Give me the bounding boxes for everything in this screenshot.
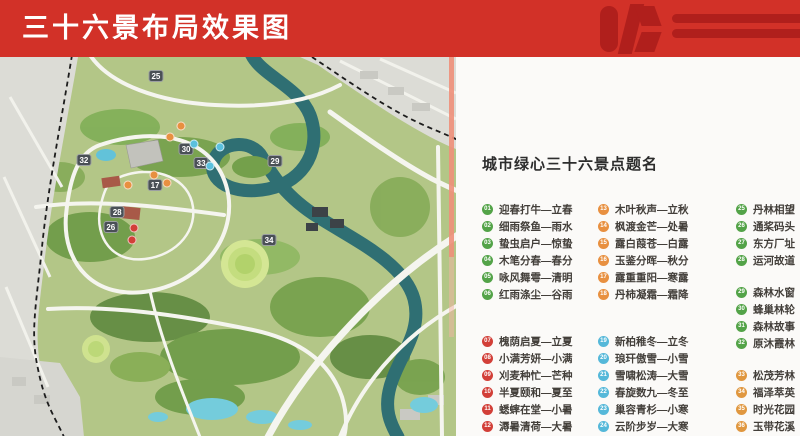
legend-badge: 12	[482, 421, 493, 432]
legend-item: 24云阶步岁—大寒	[598, 418, 736, 435]
legend-group: 25丹林相望26通桨码头27东方厂址28运河故道	[736, 201, 800, 269]
legend-item-label: 春旋数九—冬至	[615, 385, 689, 400]
legend-item: 09刈麦种忙—芒种	[482, 367, 598, 384]
legend-item: 06红雨涤尘—谷雨	[482, 286, 598, 303]
page: 三十六景布局效果图	[0, 0, 800, 436]
legend-item-label: 露白葭苍—白露	[615, 236, 689, 251]
map-marker	[189, 140, 198, 149]
legend-item: 01迎春打牛—立春	[482, 201, 598, 218]
header-ornament-bar	[672, 14, 800, 23]
legend-item-label: 雪啸松涛—大雪	[615, 368, 689, 383]
legend-item: 29森林水窗	[736, 284, 800, 301]
legend-group: 19新柏稚冬—立冬20琅玕傲雪—小雪21雪啸松涛—大雪22春旋数九—冬至23巢容…	[598, 333, 736, 435]
legend-item: 10半夏颐和—夏至	[482, 384, 598, 401]
map-marker	[177, 121, 186, 130]
legend-badge: 05	[482, 272, 493, 283]
legend-badge: 18	[598, 289, 609, 300]
legend-item-label: 丹林相望	[753, 202, 795, 217]
legend-item-label: 蜂巢林轮	[753, 302, 795, 317]
legend-item: 13木叶秋声—立秋	[598, 201, 736, 218]
legend-badge: 01	[482, 204, 493, 215]
legend-item-label: 小满芳妍—小满	[499, 351, 573, 366]
legend-badge: 06	[482, 289, 493, 300]
map-marker-34: 34	[262, 234, 277, 246]
legend-item-label: 东方厂址	[753, 236, 795, 251]
legend-item-label: 红雨涤尘—谷雨	[499, 287, 573, 302]
map-marker-26: 26	[103, 221, 118, 233]
header-ornament	[598, 4, 662, 54]
legend-group: 01迎春打牛—立春02细雨祭鱼—雨水03蛰虫启户—惊蛰04木笔分春—春分05咏风…	[482, 201, 598, 303]
map-marker	[162, 178, 171, 187]
legend-group: 33松茂芳林34福泽萃英35时光花园36玉带花溪	[736, 367, 800, 435]
legend-item: 25丹林相望	[736, 201, 800, 218]
legend-group: 13木叶秋声—立秋14枫渡金芒—处暑15露白葭苍—白露16玉鉴分晖—秋分17露重…	[598, 201, 736, 303]
map-marker	[215, 142, 224, 151]
legend-badge: 04	[482, 255, 493, 266]
legend-item: 28运河故道	[736, 252, 800, 269]
legend-item-label: 露重重阳—寒露	[615, 270, 689, 285]
legend-item: 35时光花园	[736, 401, 800, 418]
legend-item-label: 木叶秋声—立秋	[615, 202, 689, 217]
legend-item-label: 通桨码头	[753, 219, 795, 234]
legend-item-label: 玉鉴分晖—秋分	[615, 253, 689, 268]
legend-item: 16玉鉴分晖—秋分	[598, 252, 736, 269]
legend-badge: 14	[598, 221, 609, 232]
legend-item-label: 新柏稚冬—立冬	[615, 334, 689, 349]
map-marker	[206, 162, 215, 171]
legend-badge: 09	[482, 370, 493, 381]
legend-badge: 11	[482, 404, 493, 415]
legend-badge: 28	[736, 255, 747, 266]
legend-panel: 城市绿心三十六景点题名 01迎春打牛—立春02细雨祭鱼—雨水03蛰虫启户—惊蛰0…	[456, 57, 800, 436]
legend-badge: 24	[598, 421, 609, 432]
header-banner: 三十六景布局效果图	[0, 0, 800, 57]
park-map: 253029323317282634	[0, 57, 456, 436]
legend-item-label: 玉带花溪	[753, 419, 795, 434]
legend-title: 城市绿心三十六景点题名	[482, 153, 658, 174]
legend-badge: 31	[736, 321, 747, 332]
legend-item: 03蛰虫启户—惊蛰	[482, 235, 598, 252]
legend-badge: 16	[598, 255, 609, 266]
legend-badge: 30	[736, 304, 747, 315]
legend-item-label: 半夏颐和—夏至	[499, 385, 573, 400]
legend-item-label: 森林故事	[753, 319, 795, 334]
header-ornament-bar	[672, 29, 800, 38]
legend-item-label: 蛰虫启户—惊蛰	[499, 236, 573, 251]
legend-item: 04木笔分春—春分	[482, 252, 598, 269]
legend-badge: 23	[598, 404, 609, 415]
page-title: 三十六景布局效果图	[22, 0, 292, 57]
legend-badge: 10	[482, 387, 493, 398]
legend-item: 32原沐霞林	[736, 335, 800, 352]
map-markers-layer: 253029323317282634	[0, 57, 456, 436]
legend-badge: 03	[482, 238, 493, 249]
legend-badge: 22	[598, 387, 609, 398]
legend-item-label: 蟋蟀在堂—小暑	[499, 402, 573, 417]
legend-column: 13木叶秋声—立秋14枫渡金芒—处暑15露白葭苍—白露16玉鉴分晖—秋分17露重…	[598, 201, 736, 435]
legend-badge: 07	[482, 336, 493, 347]
map-marker-32: 32	[76, 154, 91, 166]
legend-item-label: 刈麦种忙—芒种	[499, 368, 573, 383]
legend-badge: 34	[736, 387, 747, 398]
legend-group: 29森林水窗30蜂巢林轮31森林故事32原沐霞林	[736, 284, 800, 352]
legend-item-label: 丹柿凝霜—霜降	[615, 287, 689, 302]
legend-group: 07槐荫启夏—立夏08小满芳妍—小满09刈麦种忙—芒种10半夏颐和—夏至11蟋蟀…	[482, 333, 598, 435]
map-marker	[127, 236, 136, 245]
legend-item: 34福泽萃英	[736, 384, 800, 401]
legend-item: 02细雨祭鱼—雨水	[482, 218, 598, 235]
legend-badge: 15	[598, 238, 609, 249]
legend-item-label: 运河故道	[753, 253, 795, 268]
legend-badge: 27	[736, 238, 747, 249]
legend-badge: 33	[736, 370, 747, 381]
legend-badge: 19	[598, 336, 609, 347]
legend-item: 30蜂巢林轮	[736, 301, 800, 318]
legend-badge: 35	[736, 404, 747, 415]
legend-badge: 25	[736, 204, 747, 215]
legend-item-label: 溽暑清荷—大暑	[499, 419, 573, 434]
legend-item: 12溽暑清荷—大暑	[482, 418, 598, 435]
legend-item: 17露重重阳—寒露	[598, 269, 736, 286]
legend-badge: 13	[598, 204, 609, 215]
legend-column: 25丹林相望26通桨码头27东方厂址28运河故道29森林水窗30蜂巢林轮31森林…	[736, 201, 800, 435]
legend-item: 18丹柿凝霜—霜降	[598, 286, 736, 303]
legend-item: 23巢容青杉—小寒	[598, 401, 736, 418]
legend-item-label: 森林水窗	[753, 285, 795, 300]
legend-item: 22春旋数九—冬至	[598, 384, 736, 401]
legend-item-label: 咏风舞雩—清明	[499, 270, 573, 285]
legend-item-label: 巢容青杉—小寒	[615, 402, 689, 417]
legend-item: 07槐荫启夏—立夏	[482, 333, 598, 350]
legend-item: 26通桨码头	[736, 218, 800, 235]
legend-badge: 02	[482, 221, 493, 232]
legend-badge: 21	[598, 370, 609, 381]
legend-badge: 29	[736, 287, 747, 298]
legend-item: 27东方厂址	[736, 235, 800, 252]
legend-item: 11蟋蟀在堂—小暑	[482, 401, 598, 418]
legend-badge: 17	[598, 272, 609, 283]
legend-item-label: 时光花园	[753, 402, 795, 417]
map-marker-29: 29	[267, 155, 282, 167]
legend-item: 36玉带花溪	[736, 418, 800, 435]
legend-badge: 26	[736, 221, 747, 232]
map-marker	[166, 132, 175, 141]
legend-badge: 36	[736, 421, 747, 432]
legend-item-label: 细雨祭鱼—雨水	[499, 219, 573, 234]
map-marker-25: 25	[148, 70, 163, 82]
legend-badge: 08	[482, 353, 493, 364]
map-marker	[150, 170, 159, 179]
legend-item: 15露白葭苍—白露	[598, 235, 736, 252]
map-marker	[124, 181, 133, 190]
legend-item: 19新柏稚冬—立冬	[598, 333, 736, 350]
legend-item: 33松茂芳林	[736, 367, 800, 384]
legend-column: 01迎春打牛—立春02细雨祭鱼—雨水03蛰虫启户—惊蛰04木笔分春—春分05咏风…	[482, 201, 598, 435]
legend-item: 31森林故事	[736, 318, 800, 335]
legend-item-label: 原沐霞林	[753, 336, 795, 351]
legend-item-label: 琅玕傲雪—小雪	[615, 351, 689, 366]
legend-item-label: 木笔分春—春分	[499, 253, 573, 268]
legend-item-label: 迎春打牛—立春	[499, 202, 573, 217]
legend-item-label: 枫渡金芒—处暑	[615, 219, 689, 234]
legend-item: 14枫渡金芒—处暑	[598, 218, 736, 235]
legend-badge: 32	[736, 338, 747, 349]
legend-item: 08小满芳妍—小满	[482, 350, 598, 367]
legend-item: 20琅玕傲雪—小雪	[598, 350, 736, 367]
legend-item-label: 松茂芳林	[753, 368, 795, 383]
legend-item: 05咏风舞雩—清明	[482, 269, 598, 286]
legend-badge: 20	[598, 353, 609, 364]
legend-columns: 01迎春打牛—立春02细雨祭鱼—雨水03蛰虫启户—惊蛰04木笔分春—春分05咏风…	[482, 201, 800, 435]
legend-item-label: 福泽萃英	[753, 385, 795, 400]
legend-item-label: 槐荫启夏—立夏	[499, 334, 573, 349]
legend-item-label: 云阶步岁—大寒	[615, 419, 689, 434]
map-marker-28: 28	[110, 206, 125, 218]
map-marker-17: 17	[148, 179, 163, 191]
legend-item: 21雪啸松涛—大雪	[598, 367, 736, 384]
map-marker	[130, 223, 139, 232]
